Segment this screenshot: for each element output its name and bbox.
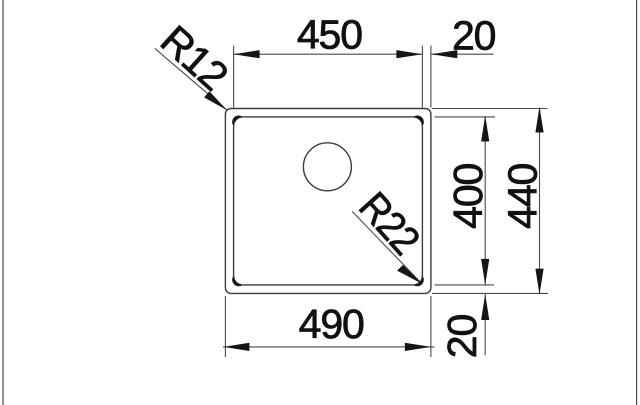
svg-text:450: 450: [297, 11, 362, 57]
svg-text:20: 20: [452, 12, 496, 58]
svg-text:400: 400: [445, 163, 491, 228]
svg-text:440: 440: [500, 163, 546, 228]
svg-text:490: 490: [299, 301, 364, 347]
svg-text:20: 20: [439, 315, 485, 359]
